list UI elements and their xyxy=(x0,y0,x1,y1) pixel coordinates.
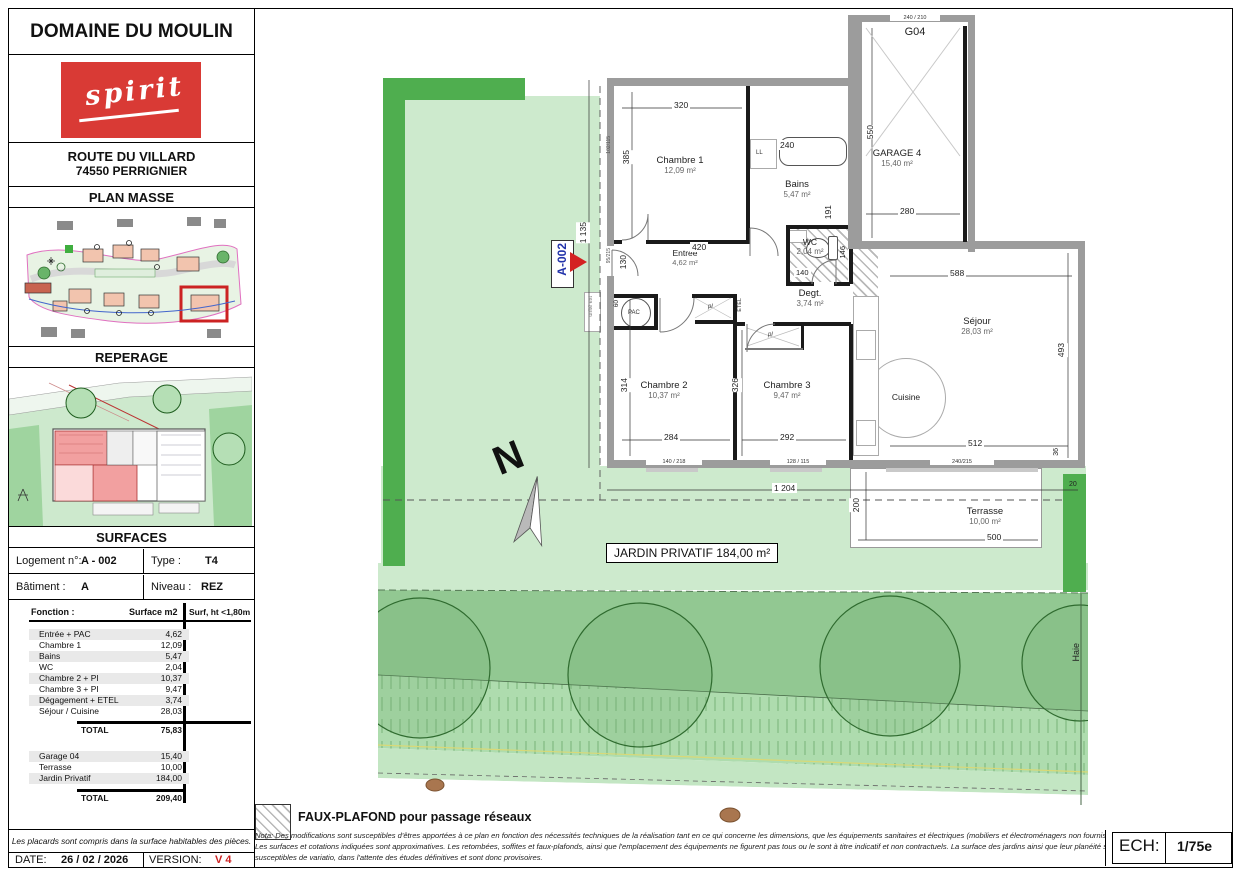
address: ROUTE DU VILLARD 74550 PERRIGNIER xyxy=(9,144,254,187)
wall xyxy=(1078,241,1085,468)
logement-label: Logement n°: xyxy=(16,549,82,574)
dim-284: 284 xyxy=(662,432,680,442)
room-entree: Entrée4,62 m² xyxy=(643,248,727,267)
table-row: Terrasse10,00 xyxy=(29,762,189,773)
room-terrasse: Terrasse10,00 m² xyxy=(943,506,1027,526)
shrub xyxy=(720,808,740,822)
info-row-logement: Logement n°: A - 002 Type : T4 xyxy=(9,549,254,574)
wall xyxy=(733,294,737,460)
dim-512: 512 xyxy=(966,438,984,448)
dim-314: 314 xyxy=(617,378,631,392)
plan-sheet: DOMAINE DU MOULIN spirit ROUTE DU VILLAR… xyxy=(0,0,1240,876)
room-chambre2: Chambre 210,37 m² xyxy=(622,380,706,400)
col-surf-ht: Surf, ht <1,80m xyxy=(189,607,250,617)
dim-420: 420 xyxy=(690,242,708,252)
table-row: Bains5,47 xyxy=(29,651,189,662)
nota-line1: Nota: Des modifications sont susceptible… xyxy=(255,830,1105,841)
col-surface: Surface m2 xyxy=(129,607,178,617)
pl-label: pl xyxy=(708,304,713,310)
plan-masse-drawing xyxy=(9,209,252,346)
wall xyxy=(786,225,848,229)
legend-text: FAUX-PLAFOND pour passage réseaux xyxy=(298,810,531,824)
table-total-row: TOTAL 209,40 xyxy=(29,793,189,804)
window-sill xyxy=(886,468,1038,472)
dim-385: 385 xyxy=(619,150,633,164)
version-label: VERSION: xyxy=(149,853,202,868)
dim-326: 326 xyxy=(728,378,742,392)
section-plan-masse-header: PLAN MASSE xyxy=(9,187,254,208)
room-garage: GARAGE 415,40 m² xyxy=(855,148,939,168)
closet-divider xyxy=(745,348,803,350)
dim-500: 500 xyxy=(985,532,1003,542)
wall xyxy=(968,15,975,252)
logo-section: spirit xyxy=(9,56,254,143)
unit-marker-label: A-002 xyxy=(555,243,569,276)
hedge-right xyxy=(1063,474,1086,592)
wall xyxy=(963,26,967,242)
nota-line3: susceptibles de variatio, dans l'attente… xyxy=(255,852,1105,863)
dim-292: 292 xyxy=(778,432,796,442)
window-label-chambre3: 128 / 115 xyxy=(770,459,826,465)
dim-320: 320 xyxy=(672,100,690,110)
dim-20: 20 xyxy=(1069,481,1077,488)
type-value: T4 xyxy=(205,549,218,574)
haie-label: Haie xyxy=(1071,643,1081,662)
compass-needle-icon xyxy=(505,473,559,554)
table-total-row: TOTAL 75,83 xyxy=(29,725,189,736)
nota-block: Nota: Des modifications sont susceptible… xyxy=(255,830,1106,866)
address-line2: 74550 PERRIGNIER xyxy=(9,164,254,178)
jardin-privatif-label: JARDIN PRIVATIF 184,00 m² xyxy=(606,543,778,563)
reperage-thumbnail xyxy=(9,369,254,527)
date-label: DATE: xyxy=(15,853,47,868)
table-row: Dégagement + ETEL3,74 xyxy=(29,695,189,706)
room-chambre1: Chambre 112,09 m² xyxy=(638,155,722,175)
tree xyxy=(820,596,960,736)
dim-200: 200 xyxy=(849,498,863,512)
dim-280: 280 xyxy=(898,206,916,216)
wall xyxy=(848,241,1085,249)
ll-label: LL xyxy=(756,150,763,156)
washing-machine xyxy=(750,139,777,169)
dim-60: 60 xyxy=(613,300,620,307)
section-reperage-header: REPERAGE xyxy=(9,347,254,368)
dim-1135: 1 135 xyxy=(576,222,590,243)
info-row-batiment: Bâtiment : A Niveau : REZ xyxy=(9,575,254,600)
shrub xyxy=(426,779,444,791)
wall xyxy=(834,282,850,286)
wall xyxy=(654,294,658,330)
spirit-logo-text: spirit xyxy=(84,71,186,112)
garden-bottom-band xyxy=(378,563,1088,825)
wall xyxy=(607,78,862,86)
title-block-sidebar: DOMAINE DU MOULIN spirit ROUTE DU VILLAR… xyxy=(8,8,255,868)
batiment-value: A xyxy=(81,575,89,600)
dim-191: 191 xyxy=(823,205,833,219)
kitchen-sink xyxy=(856,420,876,446)
table-row: Chambre 3 + PI9,47 xyxy=(29,684,189,695)
wall xyxy=(773,322,851,326)
dim-1204: 1 204 xyxy=(772,483,797,493)
garage-code: G04 xyxy=(873,26,957,38)
table-row: Chambre 112,09 xyxy=(29,640,189,651)
spirit-logo: spirit xyxy=(61,62,201,138)
date-value: 26 / 02 / 2026 xyxy=(61,853,128,868)
window-label-chambre2: 140 / 218 xyxy=(646,459,702,465)
address-line1: ROUTE DU VILLARD xyxy=(9,149,254,164)
room-bains: Bains5,47 m² xyxy=(755,179,839,199)
tree xyxy=(568,603,712,747)
table-row: Entrée + PAC4,62 xyxy=(29,629,189,640)
project-title: DOMAINE DU MOULIN xyxy=(9,9,254,55)
table-row: Séjour / Cuisine28,03 xyxy=(29,706,189,717)
garage-door-label: 240 / 210 xyxy=(890,15,940,21)
room-sejour: Séjour28,03 m² xyxy=(935,316,1019,336)
pl-label: pl xyxy=(768,332,773,338)
room-degt: Degt.3,74 m² xyxy=(768,288,852,308)
window-sill xyxy=(770,468,822,472)
type-label: Type : xyxy=(151,549,181,574)
kitchen-hob xyxy=(856,330,876,360)
window-label-sejour: 240/215 xyxy=(930,459,994,465)
wall xyxy=(746,86,750,244)
date-version-row: DATE: 26 / 02 / 2026 VERSION: V 4 xyxy=(9,852,254,868)
wall xyxy=(614,240,622,244)
scale-box: ECH: 1/75e xyxy=(1112,832,1232,864)
wall xyxy=(614,326,658,330)
table-row: Jardin Privatif184,00 xyxy=(29,773,189,784)
section-surfaces-header: SURFACES xyxy=(9,527,254,548)
dim-550: 550 xyxy=(863,125,877,139)
unite-ext-label: unité ext xyxy=(588,296,594,317)
dim-140: 140 xyxy=(794,268,811,277)
window-label-chambre1: 102/115 xyxy=(606,136,612,154)
wall xyxy=(801,326,804,350)
dim-130: 130 xyxy=(618,255,628,269)
door-label-entree: 95/215 xyxy=(606,248,612,263)
logement-value: A - 002 xyxy=(81,549,117,574)
surfaces-table: Fonction : Surface m2 Surf, ht <1,80m En… xyxy=(9,601,254,829)
wall xyxy=(849,324,853,460)
dim-493: 493 xyxy=(1054,343,1068,357)
dim-588: 588 xyxy=(948,268,966,278)
etel-label: ETEL xyxy=(737,298,743,312)
niveau-label: Niveau : xyxy=(151,575,191,600)
reperage-drawing xyxy=(9,369,252,526)
scale-label: ECH: xyxy=(1119,836,1160,856)
hedge-left xyxy=(383,78,405,566)
dim-240: 240 xyxy=(778,140,796,150)
wall xyxy=(692,294,737,298)
wall xyxy=(737,322,745,326)
wall xyxy=(786,282,814,286)
north-arrow: N xyxy=(492,436,572,552)
window-sill xyxy=(646,468,698,472)
niveau-value: REZ xyxy=(201,575,223,600)
scale-value: 1/75e xyxy=(1177,838,1212,854)
plan-masse-thumbnail xyxy=(9,209,254,347)
unit-arrow-icon xyxy=(570,252,587,272)
version-value: V 4 xyxy=(215,853,232,868)
dim-146: 146 xyxy=(838,246,847,259)
room-cuisine: Cuisine xyxy=(864,392,948,402)
table-row: WC2,04 xyxy=(29,662,189,673)
col-fonction: Fonction : xyxy=(31,607,75,617)
wall xyxy=(695,320,733,324)
pac-label: PAC xyxy=(628,310,640,316)
table-row: Chambre 2 + PI10,37 xyxy=(29,673,189,684)
wall xyxy=(614,294,658,298)
batiment-label: Bâtiment : xyxy=(16,575,66,600)
nota-line2: Les surfaces et cotations indiquées sont… xyxy=(255,841,1105,852)
dim-36: 36 xyxy=(1053,448,1060,456)
table-row: Garage 0415,40 xyxy=(29,751,189,762)
placards-footnote: Les placards sont compris dans la surfac… xyxy=(9,829,254,853)
wall xyxy=(848,15,862,245)
room-chambre3: Chambre 39,47 m² xyxy=(745,380,829,400)
